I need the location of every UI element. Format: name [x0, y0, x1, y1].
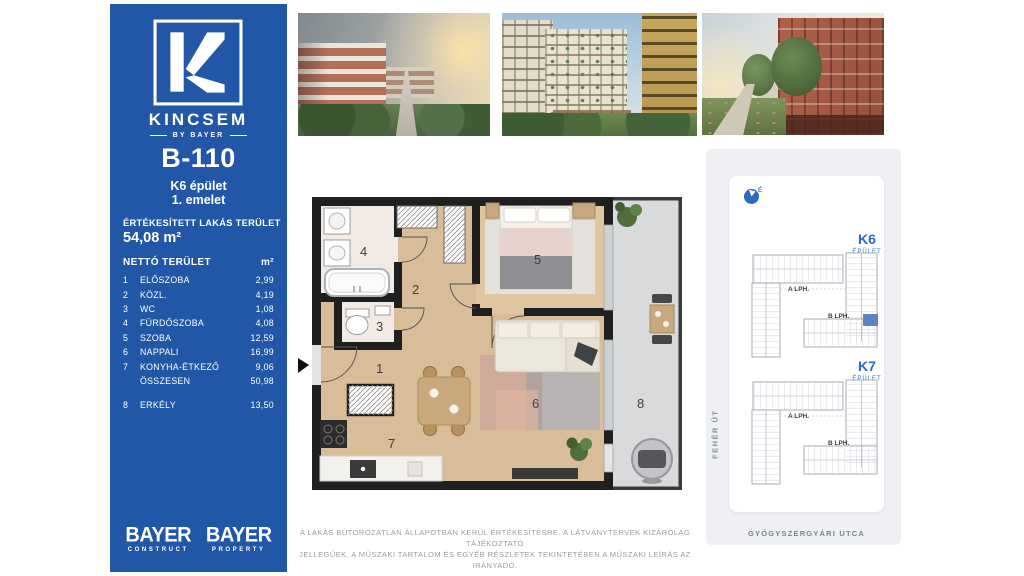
- room-number: 7: [123, 362, 140, 372]
- logo-division-text: PROPERTY: [202, 547, 277, 553]
- net-area-header-label: NETTÓ TERÜLET: [123, 257, 211, 268]
- room-label-7: 7: [388, 436, 395, 451]
- street-label-gyogyszergyari-utca: GYÓGYSZERGYÁRI UTCA: [729, 529, 884, 538]
- room-area: 9,06: [256, 362, 274, 372]
- room-name: FÜRDŐSZOBA: [140, 318, 256, 328]
- byline-dash: [230, 135, 247, 137]
- building-k7-label: K7: [858, 358, 876, 374]
- table-row: 3 WC 1,08: [123, 302, 274, 316]
- logo-division-text: CONSTRUCT: [121, 547, 196, 553]
- k6-lobby-a-label: A LPH.: [788, 286, 809, 293]
- unit-id: B-110: [110, 143, 287, 174]
- room-label-8: 8: [637, 396, 644, 411]
- kincsem-logo-icon: [153, 19, 243, 106]
- sidebar: KINCSEM BY BAYER B-110 K6 épület 1. emel…: [110, 4, 287, 572]
- room-area: 1,08: [256, 304, 274, 314]
- sold-area-label: ÉRTÉKESÍTETT LAKÁS TERÜLET: [123, 218, 281, 228]
- highlighted-unit: [863, 314, 878, 326]
- room-number: 8: [123, 400, 140, 410]
- room-number: 4: [123, 318, 140, 328]
- room-number: 5: [123, 333, 140, 343]
- byline-text: BY BAYER: [173, 132, 224, 139]
- dining-set: [418, 367, 470, 436]
- room-area: 50,98: [250, 376, 274, 386]
- apartment-datasheet-page: KINCSEM BY BAYER B-110 K6 épület 1. emel…: [0, 0, 1024, 576]
- floor-name: 1. emelet: [110, 193, 287, 207]
- k7-lobby-b-label: B LPH.: [828, 440, 850, 447]
- table-row: 5 SZOBA 12,59: [123, 331, 274, 345]
- disclaimer-line-2: JELLEGŰEK. A MŰSZAKI TARTALOM ÉS EGYÉB R…: [294, 549, 696, 571]
- table-row-total: ÖSSZESEN 50,98: [123, 374, 274, 388]
- building-k6-label: K6: [858, 231, 876, 247]
- trees: [298, 104, 490, 136]
- room-number: 6: [123, 347, 140, 357]
- render-photo-street: [702, 13, 884, 135]
- room-name: ÖSSZESEN: [140, 376, 250, 386]
- room-area: 16,99: [250, 347, 274, 357]
- render-photo-courtyard: [502, 13, 697, 136]
- room-label-3: 3: [376, 319, 383, 334]
- room-area: 12,59: [250, 333, 274, 343]
- table-row: 2 KÖZL. 4,19: [123, 287, 274, 301]
- compass-icon: É: [744, 185, 763, 204]
- tree: [771, 37, 822, 96]
- table-row: 6 NAPPALI 16,99: [123, 345, 274, 359]
- building-k7-plan: K7 ÉPÜLET A LPH: [752, 358, 882, 484]
- courtyard-green: [502, 113, 697, 136]
- street-label-feher-ut: FEHÉR ÚT: [706, 396, 724, 472]
- disclaimer: A LAKÁS BÚTOROZATLAN ÁLLAPOTBAN KERÜL ÉR…: [294, 527, 696, 571]
- building-base: [778, 115, 884, 135]
- building-name: K6 épület: [110, 179, 287, 193]
- room-name: KONYHA-ÉTKEZŐ: [140, 362, 256, 372]
- room-name: WC: [140, 304, 256, 314]
- k6-lobby-b-label: B LPH.: [828, 313, 850, 320]
- entrance-arrow-icon: [298, 358, 309, 373]
- sold-area-value: 54,08 m²: [123, 230, 181, 246]
- room-label-4: 4: [360, 244, 367, 259]
- room-area: 4,19: [256, 290, 274, 300]
- byline-dash: [150, 135, 167, 137]
- room-area: 13,50: [250, 400, 274, 410]
- bayer-property-logo: BAYER PROPERTY: [202, 525, 277, 553]
- room-label-6: 6: [532, 396, 539, 411]
- building-k6-plan: K6 ÉPÜLET: [752, 231, 882, 357]
- room-area: 2,99: [256, 275, 274, 285]
- siteplan-drawing: É K6 ÉPÜLET: [706, 149, 901, 545]
- room-name: ERKÉLY: [140, 400, 250, 410]
- room-area: 4,08: [256, 318, 274, 328]
- room-number: 1: [123, 275, 140, 285]
- room-name: KÖZL.: [140, 290, 256, 300]
- room-label-1: 1: [376, 361, 383, 376]
- floor-plan: 1 2 3 4 5 6 7 8: [296, 192, 686, 498]
- table-row-balcony: 8 ERKÉLY 13,50: [123, 398, 274, 412]
- logo-brand-text: BAYER: [202, 524, 277, 546]
- room-number: 3: [123, 304, 140, 314]
- logo-brand-text: BAYER: [121, 524, 196, 546]
- net-area-header-unit: m²: [261, 257, 274, 268]
- net-area-table: 1 ELŐSZOBA 2,99 2 KÖZL. 4,19 3 WC 1,08 4…: [123, 273, 274, 412]
- brand-name: KINCSEM: [110, 110, 287, 130]
- room-name: ELŐSZOBA: [140, 275, 256, 285]
- entrance-threshold: [312, 345, 321, 385]
- brand-byline: BY BAYER: [110, 132, 287, 139]
- table-row: 4 FÜRDŐSZOBA 4,08: [123, 316, 274, 330]
- net-area-header: NETTÓ TERÜLET m²: [123, 257, 274, 268]
- render-photo-park: [298, 13, 490, 136]
- room-number: 2: [123, 290, 140, 300]
- table-row: 1 ELŐSZOBA 2,99: [123, 273, 274, 287]
- table-row: 7 KONYHA-ÉTKEZŐ 9,06: [123, 359, 274, 373]
- room-name: SZOBA: [140, 333, 250, 343]
- footer-logos: BAYER CONSTRUCT BAYER PROPERTY: [121, 525, 276, 553]
- room-label-5: 5: [534, 252, 541, 267]
- compass-north-label: É: [758, 185, 763, 194]
- disclaimer-line-1: A LAKÁS BÚTOROZATLAN ÁLLAPOTBAN KERÜL ÉR…: [294, 527, 696, 549]
- room-name: NAPPALI: [140, 347, 250, 357]
- bayer-construct-logo: BAYER CONSTRUCT: [121, 525, 196, 553]
- k7-lobby-a-label: A LPH.: [788, 413, 809, 420]
- bedroom-furniture: [485, 203, 595, 294]
- room-label-2: 2: [412, 282, 419, 297]
